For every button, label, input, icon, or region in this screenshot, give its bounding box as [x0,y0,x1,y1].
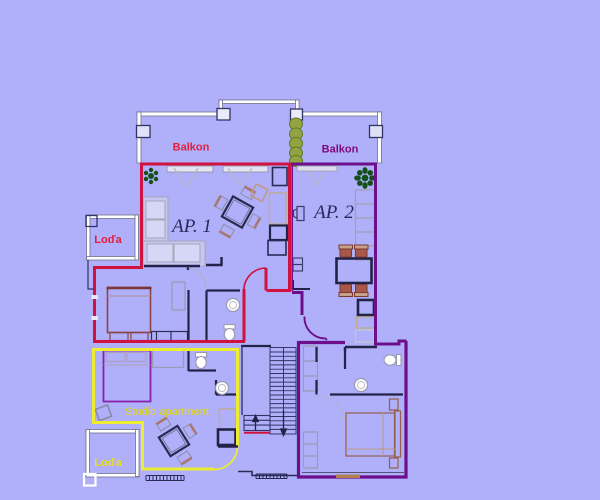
svg-text:AP. 2: AP. 2 [312,202,354,223]
svg-text:Studio apartment: Studio apartment [125,406,209,418]
svg-text:Balkon: Balkon [173,142,210,154]
svg-text:Loďa: Loďa [94,234,122,246]
svg-text:Loďa: Loďa [94,457,122,469]
svg-text:Balkon: Balkon [322,144,359,156]
svg-text:AP. 1: AP. 1 [170,216,212,237]
